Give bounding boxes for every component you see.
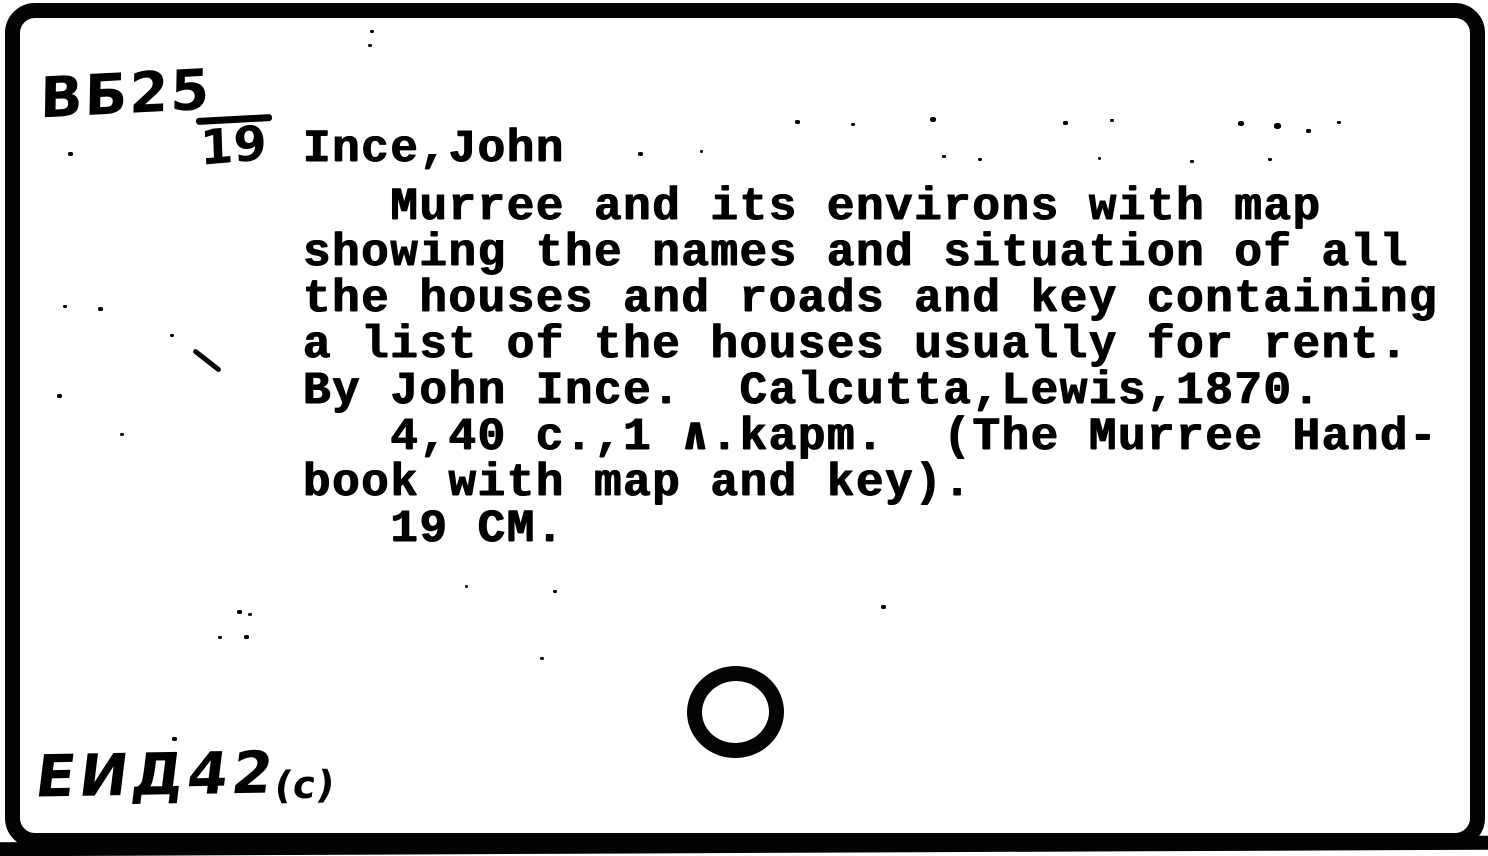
ink-speck xyxy=(638,152,643,156)
ink-speck xyxy=(244,635,249,639)
catalog-card: ВБ25 19 Ince,John Murree and its environ… xyxy=(0,0,1488,854)
ink-speck xyxy=(465,585,468,588)
entry-body: Murree and its environs with map showing… xyxy=(303,184,1438,552)
call-number-top: ВБ25 xyxy=(40,57,212,131)
ink-speck xyxy=(1110,119,1114,122)
ink-speck xyxy=(930,117,936,122)
typed-line: book with map and key). xyxy=(303,460,1438,506)
typed-line: 4,40 c.,1 ∧.kapm. (The Murree Hand- xyxy=(303,414,1438,460)
ink-speck xyxy=(1098,157,1101,160)
typed-line: a list of the houses usually for rent. xyxy=(303,322,1438,368)
ink-speck xyxy=(172,737,177,741)
typed-line: showing the names and situation of all xyxy=(303,230,1438,276)
ink-speck xyxy=(1268,158,1272,161)
ink-speck xyxy=(57,394,62,398)
typed-line: 19 CM. xyxy=(303,506,1438,552)
ink-speck xyxy=(1306,129,1311,133)
ink-speck xyxy=(248,613,252,616)
ink-speck xyxy=(553,590,557,593)
ink-speck xyxy=(237,610,242,614)
typed-line: the houses and roads and key containing xyxy=(303,276,1438,322)
ink-speck xyxy=(942,155,946,158)
ink-speck xyxy=(540,657,544,660)
author-heading: Ince,John xyxy=(303,126,565,172)
ink-speck xyxy=(368,44,372,47)
ink-speck xyxy=(218,636,222,639)
ink-speck xyxy=(370,30,374,33)
ink-speck xyxy=(851,123,855,126)
ink-speck xyxy=(63,305,67,308)
ink-speck xyxy=(700,150,703,153)
shelf-mark: ЕИД42(с) xyxy=(32,737,341,810)
ink-speck xyxy=(1190,160,1194,163)
ink-speck xyxy=(170,334,174,337)
typed-line: Murree and its environs with map xyxy=(303,184,1438,230)
ink-speck xyxy=(978,158,982,161)
ink-speck xyxy=(98,307,103,311)
call-number-bottom: 19 xyxy=(199,115,267,177)
shelf-mark-main: ЕИД42 xyxy=(32,738,281,810)
ink-speck xyxy=(120,433,124,436)
ink-speck xyxy=(1337,121,1341,124)
typed-line: By John Ince. Calcutta,Lewis,1870. xyxy=(303,368,1438,414)
ink-speck xyxy=(881,605,886,609)
ink-speck xyxy=(1063,121,1068,125)
ink-speck xyxy=(68,152,73,156)
ink-speck xyxy=(1274,123,1281,129)
shelf-mark-suffix: (с) xyxy=(272,762,338,807)
ink-speck xyxy=(1238,121,1244,126)
ink-speck xyxy=(795,120,800,124)
